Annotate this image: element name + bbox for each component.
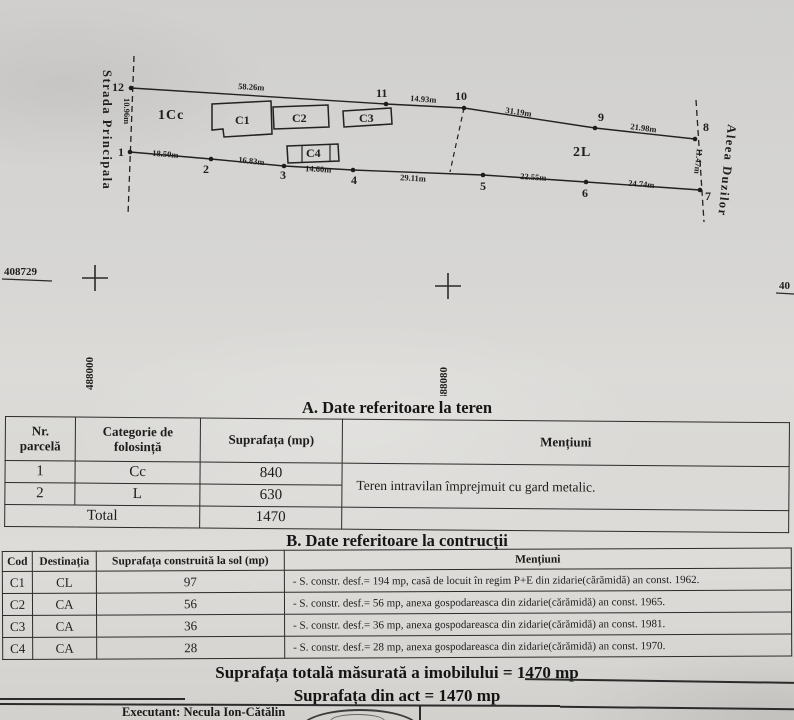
grid-cross-left — [82, 265, 108, 291]
building-c4-label: C4 — [306, 146, 321, 160]
parcel-bottom-boundary — [130, 152, 700, 190]
measure-bottom-6: 24.74m — [628, 178, 655, 190]
col-header-suprafata-construita: Suprafața construită la sol (mp) — [96, 550, 284, 571]
cell-cat-2: L — [75, 483, 200, 506]
cell-cod-c3: C3 — [3, 615, 33, 637]
point-5-label: 5 — [480, 179, 486, 193]
grid-code-underline — [2, 279, 52, 281]
col-header-destinatia: Destinația — [32, 551, 96, 571]
cell-dest-c3: CA — [33, 615, 97, 637]
cell-sup-2: 630 — [200, 484, 342, 507]
measure-left-side: 10.96m — [122, 98, 132, 124]
footer-rule-bottom-right — [560, 706, 794, 710]
cell-dest-c1: CL — [32, 571, 96, 593]
point-11-label: 11 — [376, 86, 387, 100]
col-header-mentiuni: Mențiuni — [342, 419, 789, 467]
point-9-label: 9 — [598, 110, 604, 124]
measure-bottom-5: 22.55m — [520, 171, 547, 183]
measure-bottom-1: 18.50m — [152, 148, 179, 160]
point-12-label: 12 — [112, 80, 124, 94]
cell-total-label: Total — [5, 505, 200, 529]
cell-total-empty — [342, 507, 789, 533]
cell-mentiuni-c4: - S. constr. desf.= 28 mp, anexa gospoda… — [285, 634, 792, 658]
measure-right-side: 11.47m — [692, 148, 705, 175]
point-3-label: 3 — [280, 168, 286, 182]
cell-mentiuni-c2: - S. constr. desf.= 56 mp, anexa gospoda… — [284, 590, 791, 614]
table-constructii: Cod Destinația Suprafața construită la s… — [2, 548, 792, 660]
cell-dest-c2: CA — [32, 593, 96, 615]
cell-sup-c1: 97 — [96, 570, 284, 593]
grid-coord-right-partial: 40 — [779, 280, 791, 292]
site-plan-drawing: 408729 488000 488080 40 Strada Principal… — [0, 0, 794, 396]
measure-bottom-3: 14.60m — [305, 163, 332, 174]
building-c3-label: C3 — [359, 111, 374, 125]
street-right-label: Aleea Duzilor — [715, 124, 739, 218]
measure-top-3: 31.19m — [505, 105, 532, 119]
grid-cross-middle — [435, 273, 461, 299]
footer-cell-divider — [419, 705, 421, 720]
point-4-label: 4 — [351, 173, 357, 187]
cell-total-value: 1470 — [200, 506, 342, 529]
measure-top-1: 58.26m — [238, 81, 265, 93]
footer-rule-left — [0, 698, 185, 700]
measure-bottom-4: 29.11m — [400, 172, 426, 183]
point-1-label: 1 — [118, 145, 124, 159]
left-street-line — [128, 56, 134, 215]
grid-right-underline — [776, 293, 794, 294]
point-7-label: 7 — [705, 189, 711, 203]
cell-cat-1: Cc — [75, 461, 200, 484]
col-header-mentiuni-b: Mențiuni — [284, 548, 791, 570]
table-a-title: A. Date referitoare la teren — [0, 398, 794, 418]
grid-coord-middle: 488080 — [438, 367, 450, 397]
cell-sup-c2: 56 — [96, 592, 284, 615]
cell-mentiuni-c1: - S. constr. desf.= 194 mp, casă de locu… — [284, 568, 791, 592]
point-10-label: 10 — [455, 89, 467, 103]
cell-sup-c4: 28 — [97, 636, 285, 659]
scanned-cadastral-document: 408729 488000 488080 40 Strada Principal… — [0, 0, 794, 720]
point-2-label: 2 — [203, 162, 209, 176]
point-6-label: 6 — [582, 186, 588, 200]
zone-1cc-label: 1Cc — [158, 108, 184, 123]
grid-coord-left: 488000 — [84, 357, 96, 391]
parcel-divider-line — [450, 108, 464, 172]
executant-label: Executant: Necula Ion-Cătălin — [122, 705, 285, 720]
col-header-categorie: Categorie de folosință — [75, 417, 200, 462]
cell-cod-c2: C2 — [2, 593, 32, 615]
cell-nr-2: 2 — [5, 483, 75, 506]
grid-code-left: 408729 — [4, 266, 38, 278]
cell-mentiuni-c3: - S. constr. desf.= 36 mp, anexa gospoda… — [285, 612, 792, 636]
building-c1-label: C1 — [235, 113, 250, 127]
col-header-cod: Cod — [2, 551, 32, 571]
cell-sup-c3: 36 — [97, 614, 285, 637]
cell-nr-1: 1 — [5, 461, 75, 484]
col-header-nr-parcela: Nr. parcelă — [5, 417, 75, 462]
zone-2l-label: 2L — [573, 145, 591, 160]
point-8-label: 8 — [703, 120, 709, 134]
measure-top-2: 14.93m — [410, 93, 437, 105]
col-header-suprafata: Suprafața (mp) — [200, 418, 342, 463]
building-c2-label: C2 — [292, 111, 307, 125]
cell-cod-c4: C4 — [3, 637, 33, 659]
measure-bottom-2: 16.83m — [238, 154, 265, 167]
cell-cod-c1: C1 — [2, 571, 32, 593]
cell-sup-1: 840 — [200, 462, 342, 485]
table-teren: Nr. parcelă Categorie de folosință Supra… — [4, 416, 790, 533]
cell-dest-c4: CA — [33, 637, 97, 659]
table-row: C4 CA 28 - S. constr. desf.= 28 mp, anex… — [3, 634, 792, 659]
cell-mentiuni-teren: Teren intravilan împrejmuit cu gard meta… — [342, 463, 789, 511]
